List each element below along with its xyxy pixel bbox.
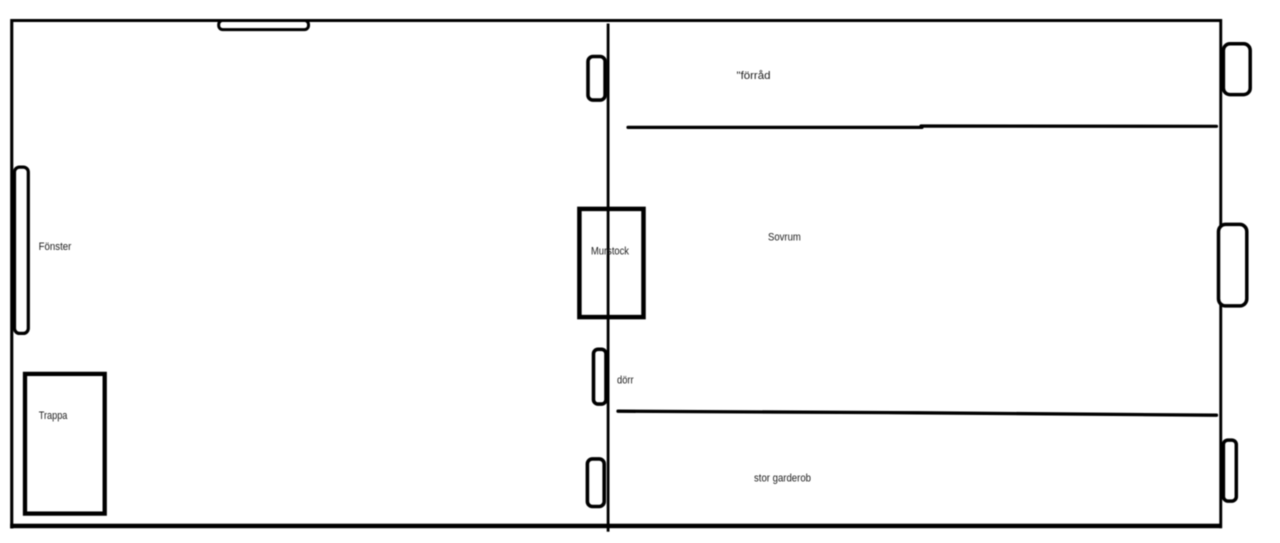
- svg-text:Sovrum: Sovrum: [768, 232, 801, 244]
- svg-text:"förråd: "förråd: [737, 70, 771, 82]
- svg-text:dörr: dörr: [617, 375, 634, 387]
- svg-text:stor garderob: stor garderob: [754, 472, 811, 484]
- svg-text:Trappa: Trappa: [39, 410, 68, 422]
- svg-text:Fönster: Fönster: [39, 241, 72, 253]
- svg-text:Murstock: Murstock: [591, 245, 629, 257]
